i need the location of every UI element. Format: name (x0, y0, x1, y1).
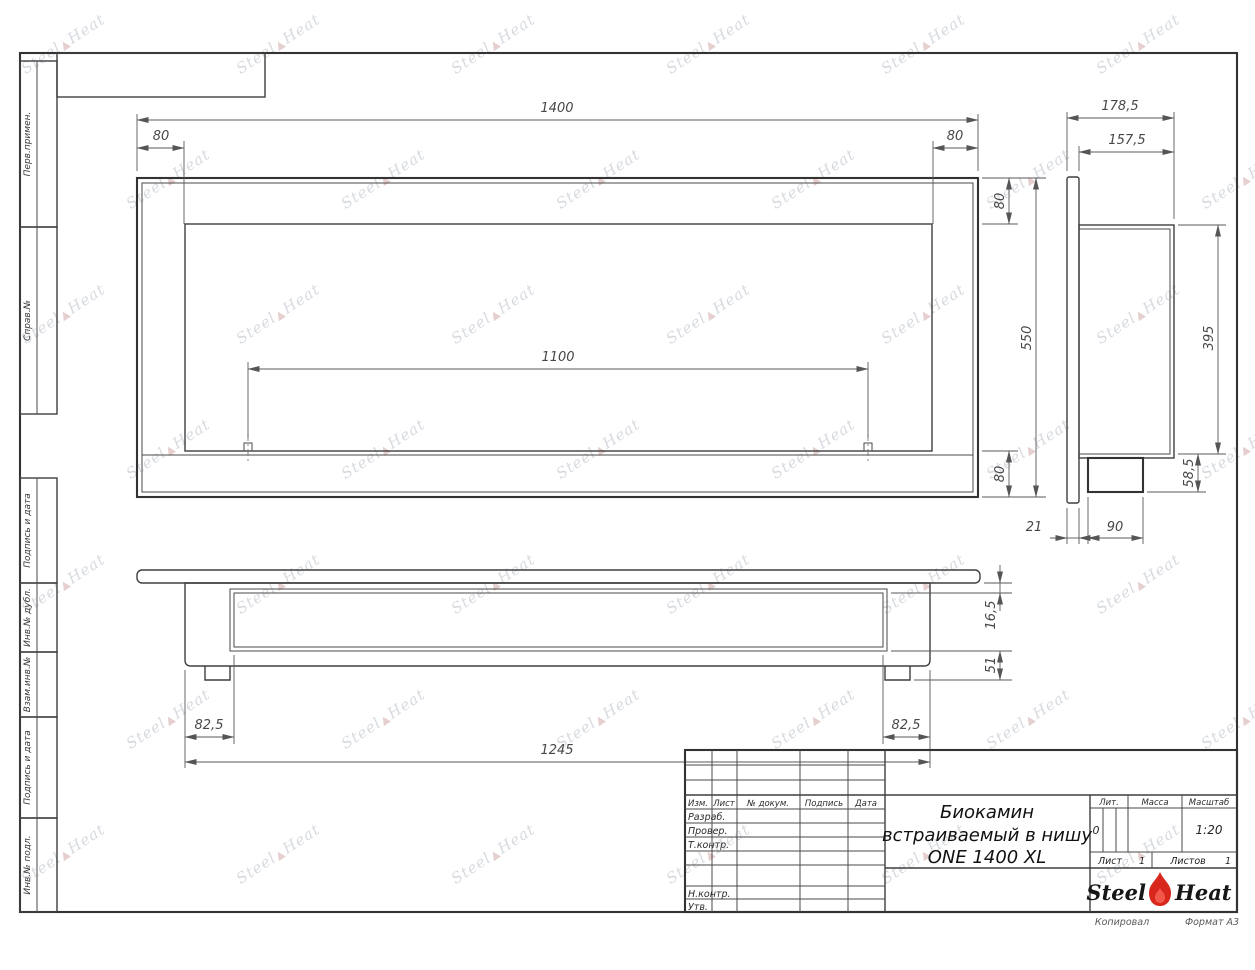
front-outer-frame (137, 178, 978, 497)
logo-text-steel: Steel (1086, 880, 1146, 905)
product-title-line3: ONE 1400 XL (928, 847, 1047, 868)
row-label-prover: Провер. (688, 826, 727, 837)
dim-side-inner-depth: 157,5 (1108, 133, 1145, 148)
front-opening (185, 224, 932, 451)
footer-copied: Копировал (1095, 917, 1149, 928)
label-sheet: Лист (1097, 856, 1123, 867)
margin-label-sprav-no: Справ.№ (23, 300, 33, 341)
row-label-utv: Утв. (688, 902, 708, 913)
margin-label-podpis-data-2: Подпись и дата (23, 730, 33, 805)
dim-front-left-margin: 80 (153, 129, 170, 144)
side-body-inner (1079, 229, 1170, 454)
margin-label-podpis-data-1: Подпись и дата (23, 493, 33, 568)
margin-label-inv-podl: Инв.№ подл. (23, 835, 33, 894)
margin-label-inv-dubl: Инв.№ дубл. (23, 588, 33, 647)
dim-side-tray-depth: 90 (1107, 520, 1124, 535)
row-label-nkontr: Н.контр. (688, 889, 731, 900)
dim-side-flange-depth: 21 (1026, 520, 1043, 535)
dim-front-bottom-margin: 80 (993, 466, 1008, 483)
dim-side-inner-height: 395 (1202, 326, 1217, 351)
bottom-mount-plate (137, 570, 980, 583)
dim-bottom-right-inset: 82,5 (892, 718, 921, 733)
sheet-frame (20, 53, 1237, 912)
dim-bottom-left-inset: 82,5 (195, 718, 224, 733)
title-block: Изм. Лист № докум. Подпись Дата Разраб. … (685, 750, 1239, 928)
label-sheets: Листов (1169, 856, 1206, 867)
dim-front-opening-width: 1100 (541, 350, 574, 365)
steelheat-logo: Steel Heat (1086, 872, 1231, 906)
frame-border (20, 53, 1237, 912)
bottom-view: 16,5 51 82,5 82,5 1245 (137, 565, 1012, 768)
dim-bottom-plate-gap: 16,5 (984, 601, 999, 630)
value-scale: 1:20 (1196, 823, 1223, 837)
margin-column: Перв.примен. Справ.№ Подпись и дата Инв.… (20, 61, 57, 912)
row-label-razrab: Разраб. (688, 812, 725, 823)
footer-format: Формат А3 (1185, 917, 1239, 928)
col-header-izm: Изм. (688, 799, 708, 809)
foot-right (885, 666, 910, 680)
bottom-opening-inner (234, 593, 883, 647)
value-lit: 0 (1093, 824, 1100, 837)
side-burner-tray (1088, 458, 1143, 492)
dim-front-top-margin: 80 (993, 193, 1008, 210)
side-view: 178,5 157,5 395 58,5 21 90 (1026, 99, 1226, 544)
row-label-tkontr: Т.контр. (688, 840, 729, 851)
drawing-canvas: Перв.примен. Справ.№ Подпись и дата Инв.… (0, 0, 1255, 970)
product-title-line1: Биокамин (940, 802, 1034, 823)
side-front-flange (1067, 177, 1079, 503)
header-mass: Масса (1141, 798, 1168, 808)
logo-text-heat: Heat (1174, 880, 1232, 905)
value-sheets: 1 (1225, 856, 1231, 867)
dim-front-right-margin: 80 (947, 129, 964, 144)
side-body (1079, 225, 1174, 458)
col-header-doc: № докум. (746, 799, 789, 809)
dim-side-total-depth: 178,5 (1101, 99, 1138, 114)
col-header-list: Лист (712, 799, 736, 809)
value-sheet: 1 (1139, 856, 1145, 867)
dim-bottom-body-width: 1245 (540, 743, 573, 758)
margin-label-perv-primen: Перв.примен. (23, 112, 33, 177)
foot-left (205, 666, 230, 680)
col-header-sign: Подпись (805, 799, 843, 809)
dim-bottom-base-height: 51 (984, 657, 999, 674)
dim-side-tray-height: 58,5 (1182, 459, 1197, 488)
bottom-body (185, 583, 930, 666)
front-view: 1400 80 80 1100 80 550 80 (137, 101, 1046, 497)
bottom-opening-outer (230, 589, 887, 651)
product-title-line2: встраиваемый в нишу (882, 825, 1092, 846)
col-header-date: Дата (854, 799, 877, 809)
top-stamp-box (57, 53, 265, 97)
drawing-sheet: Steel▲HeatSteel▲HeatSteel▲HeatSteel▲Heat… (0, 0, 1255, 970)
header-lit: Лит. (1098, 798, 1119, 808)
margin-label-vzam-inv: Взам.инв.№ (23, 657, 33, 712)
header-scale: Масштаб (1189, 798, 1229, 808)
dim-front-total-height: 550 (1020, 326, 1035, 351)
front-inner-frame (142, 183, 973, 492)
dim-front-total-width: 1400 (540, 101, 573, 116)
